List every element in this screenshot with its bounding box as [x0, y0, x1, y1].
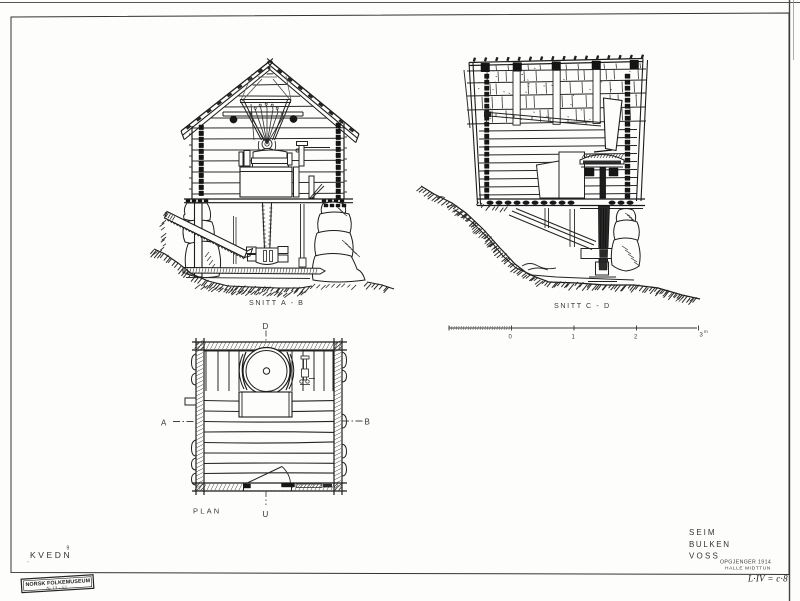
svg-text:VOSS: VOSS — [689, 552, 720, 561]
svg-text:SEIM: SEIM — [689, 528, 717, 537]
svg-text:C - D: C - D — [586, 301, 611, 310]
svg-text:D: D — [263, 322, 269, 331]
svg-text:U: U — [263, 510, 269, 519]
svg-text:9: 9 — [67, 546, 70, 552]
svg-text:A: A — [161, 419, 167, 428]
svg-text:KVEDN: KVEDN — [30, 550, 72, 560]
svg-text:BULKEN: BULKEN — [689, 540, 731, 549]
svg-text:SNITT: SNITT — [249, 298, 278, 307]
svg-text:HALLE MIDTTUN: HALLE MIDTTUN — [725, 566, 771, 572]
svg-text:SNITT: SNITT — [554, 301, 583, 310]
svg-text:··: ·· — [27, 560, 31, 566]
svg-text:L·IV = c·8: L·IV = c·8 — [747, 574, 788, 584]
svg-text:PLAN: PLAN — [193, 507, 221, 516]
svg-text:m: m — [704, 329, 708, 334]
svg-text:B: B — [365, 418, 370, 427]
svg-text:A - B: A - B — [281, 298, 305, 307]
svg-text:OPGJENGER 1914: OPGJENGER 1914 — [720, 560, 771, 566]
